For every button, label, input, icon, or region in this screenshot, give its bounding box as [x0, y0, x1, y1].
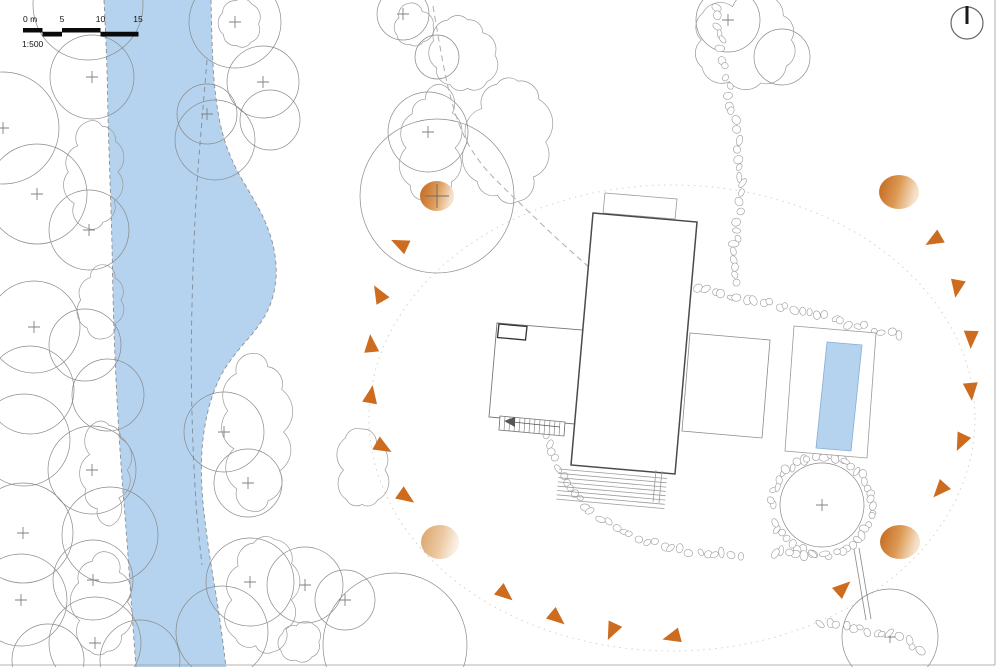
stepping-stone [803, 456, 810, 462]
stepping-stone [807, 308, 812, 315]
scale-bar-segment [43, 32, 63, 37]
scale-bar-segment [101, 32, 139, 37]
stepping-stone [868, 512, 875, 519]
stepping-stone [635, 536, 643, 544]
stepping-stone [896, 330, 902, 340]
north-arrow-needle [966, 6, 969, 24]
stepping-stone [799, 307, 806, 316]
stepping-stone [738, 552, 744, 560]
stepping-stone [909, 644, 915, 651]
proposed-tree [880, 525, 920, 559]
proposed-tree [879, 175, 919, 209]
entry-box [498, 324, 528, 340]
stepping-stone [834, 549, 841, 555]
stepping-stone [625, 531, 632, 537]
scale-bar-label: 15 [133, 14, 143, 24]
stepping-stone [843, 621, 850, 630]
stepping-stone [732, 294, 741, 302]
scale-ratio-label: 1:500 [22, 39, 44, 49]
drawing-sheet: 0 m510151:500 [0, 0, 1000, 667]
stepping-stone [847, 463, 855, 470]
site-plan-canvas: 0 m510151:500 [0, 0, 1000, 667]
proposed-tree [421, 525, 459, 559]
right-wing [682, 333, 770, 438]
stepping-stone [716, 289, 724, 298]
scale-bar-label: 0 m [23, 14, 37, 24]
pool-group [785, 326, 876, 458]
stepping-stone [728, 240, 739, 247]
main-house [571, 213, 697, 474]
scale-bar-label: 5 [60, 14, 65, 24]
scale-bar-label: 10 [96, 14, 106, 24]
